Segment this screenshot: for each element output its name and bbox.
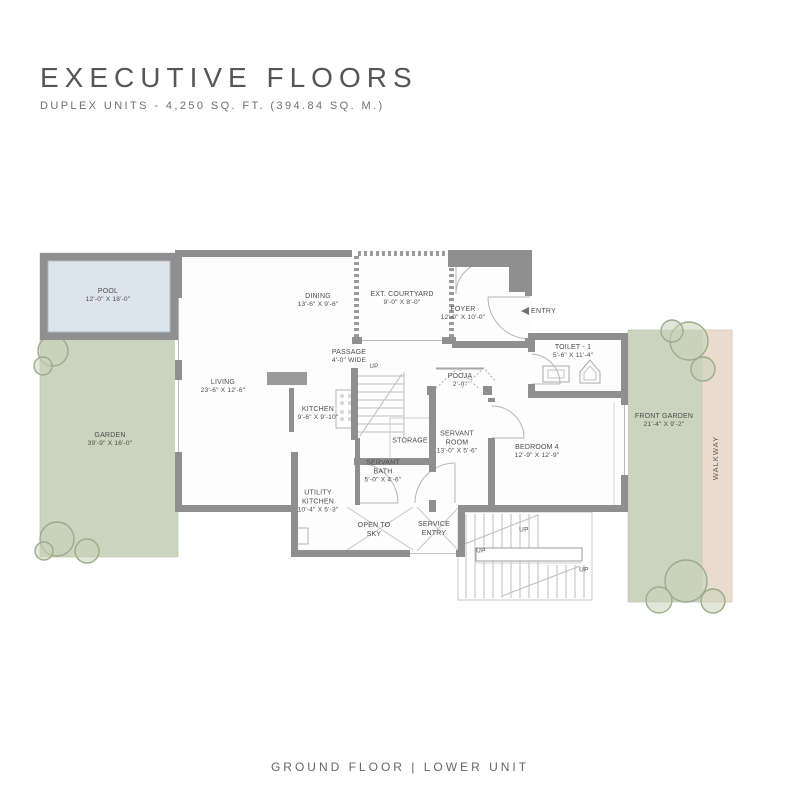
floor-plan: POOL 12'-0" X 18'-0" GARDEN 39'-9" X 16'…: [0, 0, 800, 800]
room-label-garden: GARDEN 39'-9" X 16'-0": [88, 431, 133, 449]
room-dims: 12'-0" X 18'-0": [86, 296, 131, 305]
up-label-internal-stair: UP: [370, 364, 379, 370]
room-name: STORAGE: [392, 436, 428, 445]
room-dims: 9'-0" X 8'-0": [370, 299, 433, 308]
room-dims: 2'-0": [448, 381, 473, 390]
room-name: LIVING: [201, 378, 246, 387]
footer-caption: GROUND FLOOR | LOWER UNIT: [0, 760, 800, 774]
room-name: PASSAGE: [332, 348, 366, 357]
room-label-passage: PASSAGE 4'-0" WIDE: [332, 348, 366, 366]
room-dims: 13'-6" X 9'-6": [298, 301, 339, 310]
room-name: GARDEN: [88, 431, 133, 440]
room-label-ext-courtyard: EXT. COURTYARD 9'-0" X 8'-0": [370, 290, 433, 308]
room-name: POOJA: [448, 372, 473, 381]
room-dims: 5'-0" X 4'-6": [362, 477, 404, 486]
room-dims: 23'-6" X 12'-6": [201, 387, 246, 396]
room-label-kitchen: KITCHEN 9'-6" X 9'-10": [298, 405, 339, 423]
room-dims: 39'-9" X 16'-0": [88, 440, 133, 449]
room-dims: 21'-4" X 9'-2": [635, 421, 693, 430]
room-label-dining: DINING 13'-6" X 9'-6": [298, 292, 339, 310]
room-dims: 12'-0" X 10'-0": [441, 314, 486, 323]
external-staircase: [458, 512, 592, 600]
room-label-foyer: FOYER 12'-0" X 10'-0": [441, 305, 486, 323]
sideboard: [267, 372, 307, 385]
room-name: UTILITY KITCHEN: [296, 489, 340, 507]
room-dims: 9'-6" X 9'-10": [298, 414, 339, 423]
room-label-servant-bath: SERVANT BATH 5'-0" X 4'-6": [362, 459, 404, 486]
room-dims: 10'-4" X 5'-3": [296, 507, 340, 516]
room-label-front-garden: FRONT GARDEN 21'-4" X 9'-2": [635, 412, 693, 430]
up-label-external-stair-3: UP: [579, 567, 589, 574]
room-name: SERVANT ROOM: [434, 430, 480, 448]
up-label-external-stair-1: UP: [519, 527, 529, 534]
room-name: EXT. COURTYARD: [370, 290, 433, 299]
room-name: DINING: [298, 292, 339, 301]
room-name: BEDROOM 4: [515, 443, 560, 452]
room-label-servant-room: SERVANT ROOM 13'-0" X 5'-6": [434, 430, 480, 457]
room-label-living: LIVING 23'-6" X 12'-6": [201, 378, 246, 396]
room-dims: 5'-6" X 11'-4": [553, 352, 593, 361]
room-dims: 13'-0" X 5'-6": [434, 448, 480, 457]
entry-label: ENTRY: [531, 308, 556, 315]
room-name: FRONT GARDEN: [635, 412, 693, 421]
room-label-pool: POOL 12'-0" X 18'-0": [86, 287, 131, 305]
room-name: FOYER: [441, 305, 486, 314]
room-name: TOILET - 1: [553, 343, 593, 352]
entry-arrow-icon: [521, 307, 529, 315]
room-label-open-to-sky: OPEN TO SKY: [357, 521, 391, 539]
room-dims: 12'-9" X 12'-9": [515, 452, 560, 461]
room-label-walkway: WALKWAY: [711, 436, 721, 480]
room-label-service-entry: SERVICE ENTRY: [414, 520, 454, 538]
room-dims: 4'-0" WIDE: [332, 357, 366, 366]
up-label-external-stair-2: UP: [476, 548, 486, 555]
room-name: SERVICE ENTRY: [414, 520, 454, 538]
room-label-bedroom-4: BEDROOM 4 12'-9" X 12'-9": [515, 443, 560, 461]
room-name: KITCHEN: [298, 405, 339, 414]
room-label-pooja: POOJA 2'-0": [448, 372, 473, 390]
room-name: WALKWAY: [711, 436, 721, 480]
entry-marker: ENTRY: [521, 307, 556, 315]
room-label-storage: STORAGE: [392, 436, 428, 445]
room-name: OPEN TO SKY: [357, 521, 391, 539]
room-name: POOL: [86, 287, 131, 296]
room-label-toilet-1: TOILET - 1 5'-6" X 11'-4": [553, 343, 593, 361]
floor-plan-drawing: [0, 0, 800, 800]
room-label-utility-kitchen: UTILITY KITCHEN 10'-4" X 5'-3": [296, 489, 340, 516]
room-name: SERVANT BATH: [362, 459, 404, 477]
